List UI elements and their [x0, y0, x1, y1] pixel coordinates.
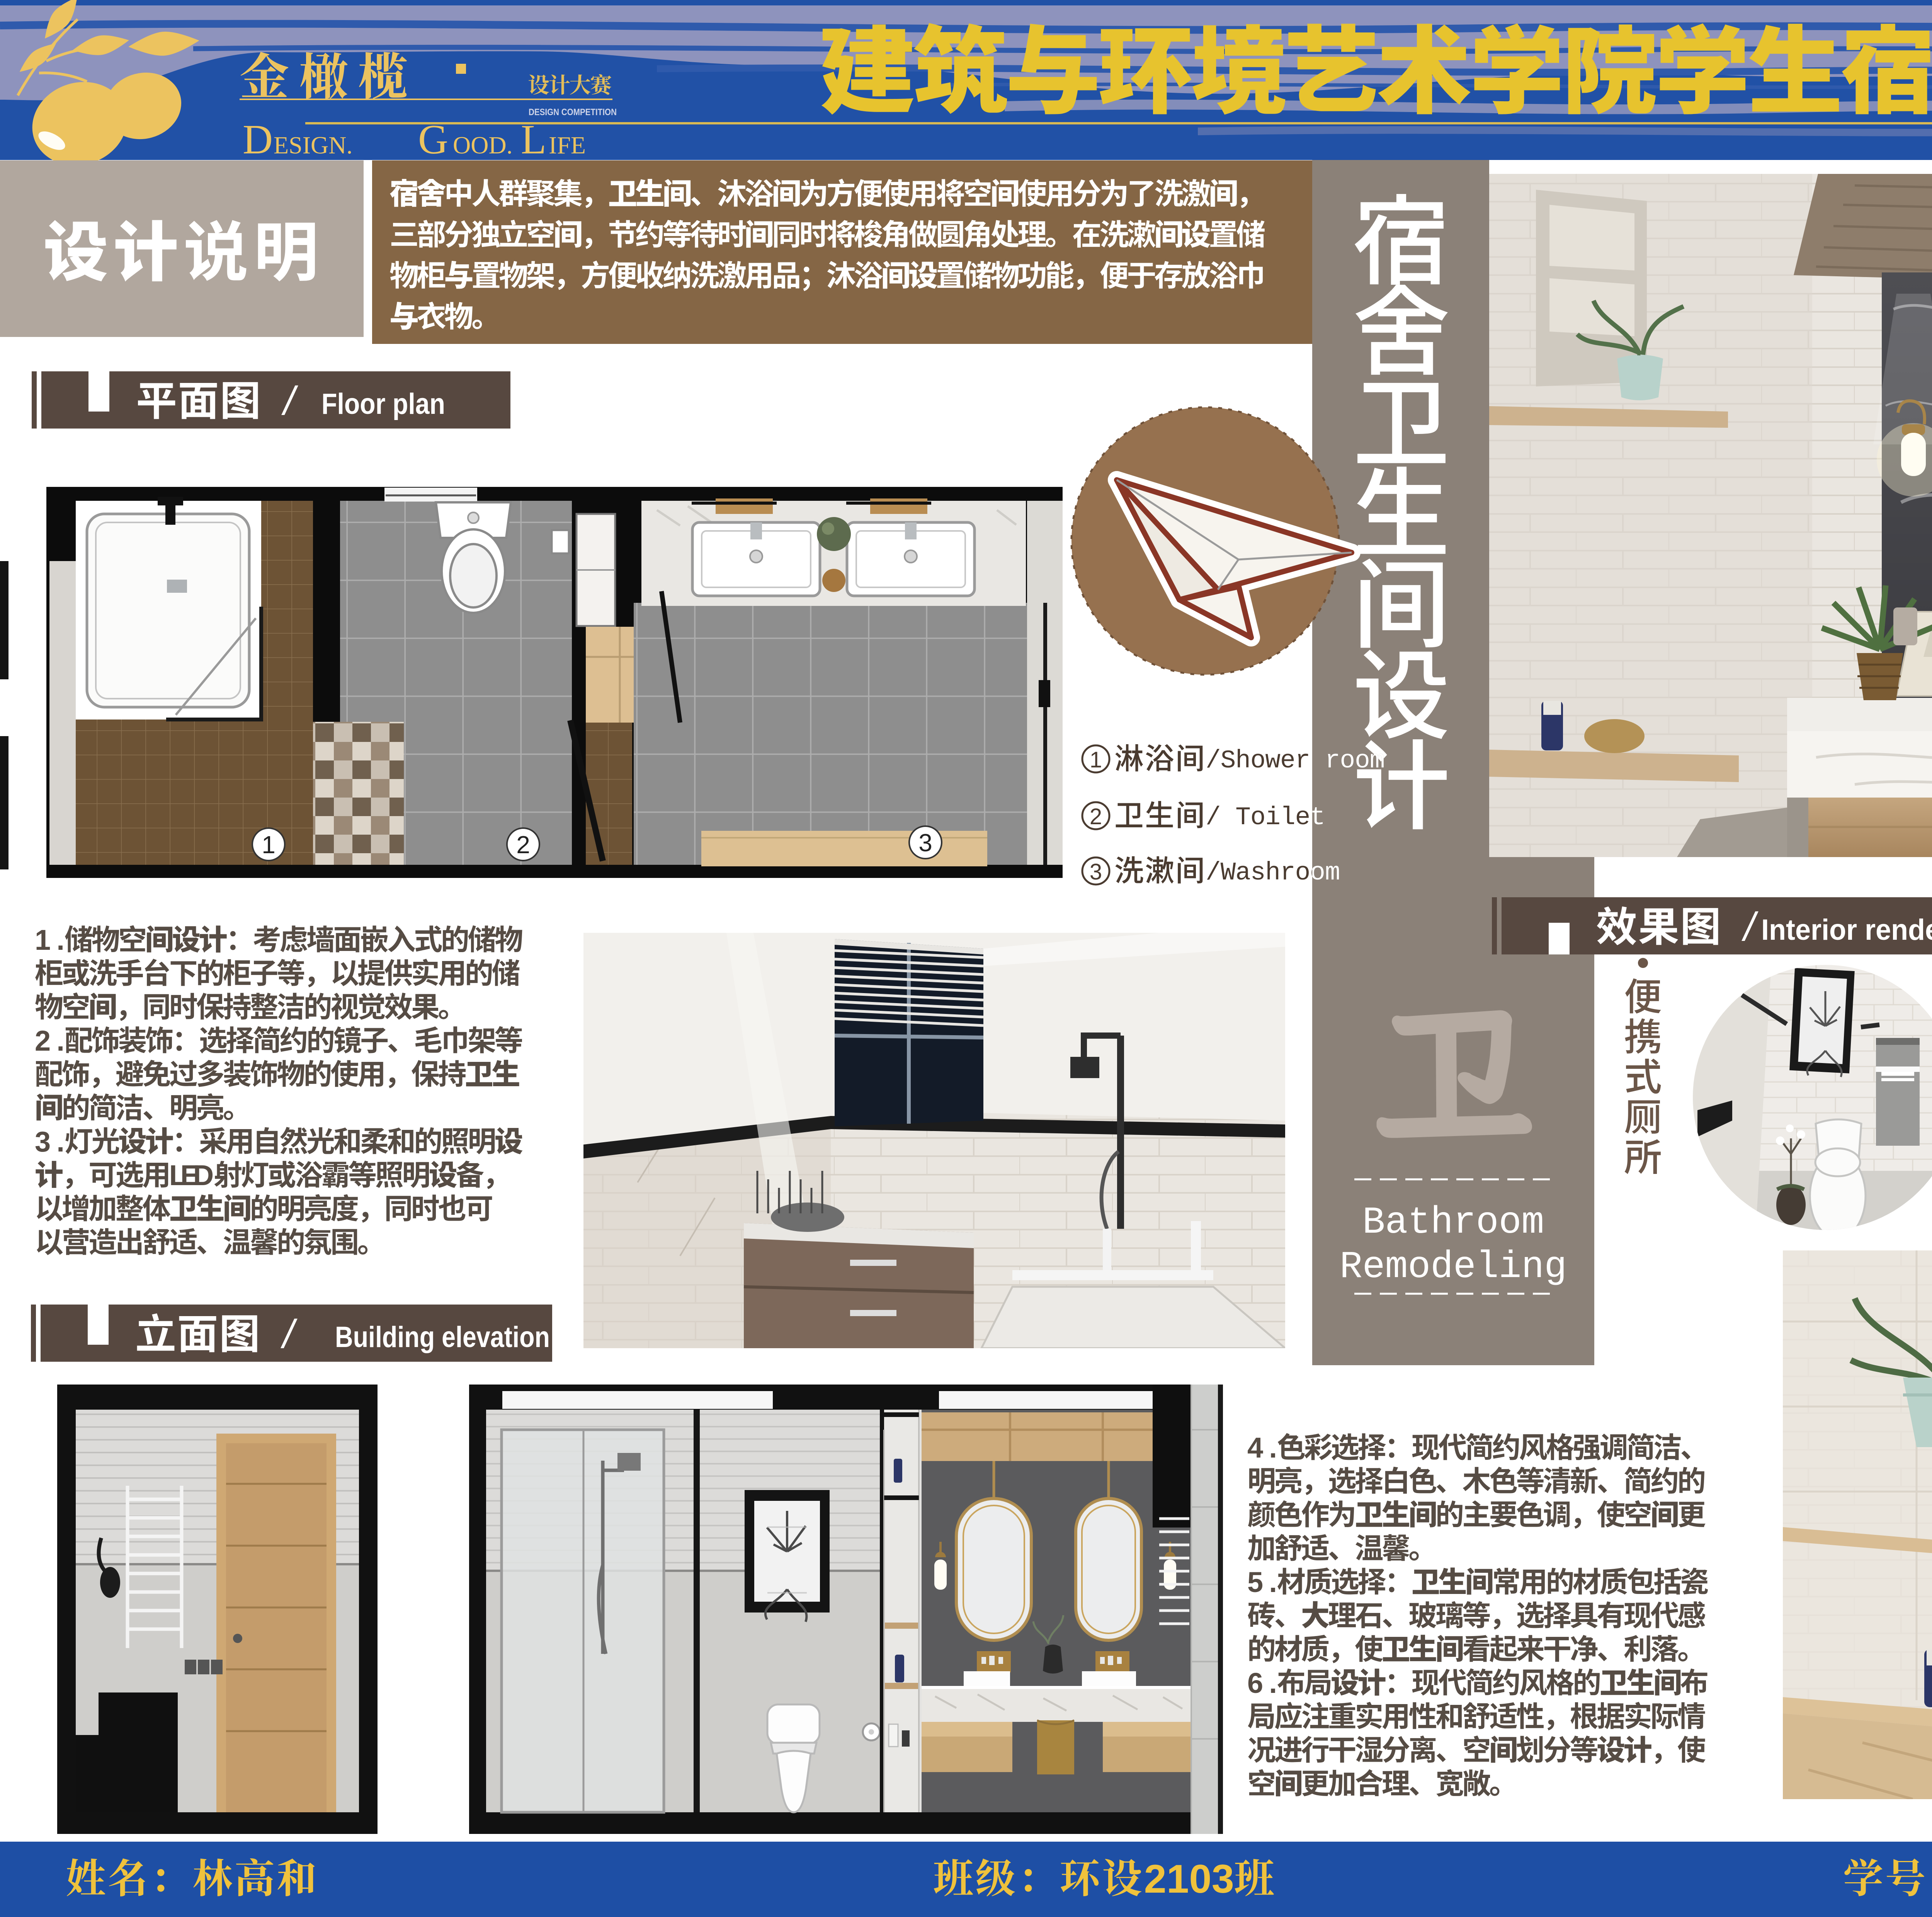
- svg-text:5.: 5.: [1247, 1566, 1277, 1598]
- svg-text:DESIGN COMPETITION: DESIGN COMPETITION: [529, 107, 617, 117]
- svg-text:3.: 3.: [35, 1126, 65, 1158]
- svg-text:1: 1: [1090, 747, 1102, 772]
- svg-text:LED: LED: [169, 1159, 214, 1191]
- svg-text:/ Toilet: / Toilet: [1206, 803, 1325, 832]
- svg-text:Interior renderings: Interior renderings: [1761, 913, 1932, 946]
- svg-text:Bathroom: Bathroom: [1362, 1201, 1544, 1244]
- svg-text:2103: 2103: [1144, 1857, 1234, 1902]
- svg-text:3: 3: [918, 829, 932, 857]
- svg-text:2.: 2.: [35, 1025, 65, 1057]
- svg-text:6.: 6.: [1247, 1667, 1277, 1699]
- svg-text:2: 2: [1090, 804, 1102, 829]
- svg-text:D: D: [243, 117, 273, 163]
- svg-text:IFE: IFE: [549, 131, 586, 159]
- svg-text:Floor plan: Floor plan: [321, 388, 445, 420]
- svg-text:1.: 1.: [35, 924, 65, 956]
- svg-text:OOD.: OOD.: [453, 131, 513, 159]
- svg-text:2: 2: [516, 831, 530, 859]
- svg-text:4.: 4.: [1247, 1432, 1277, 1464]
- svg-text:Building elevation: Building elevation: [335, 1321, 550, 1354]
- svg-text:1: 1: [262, 831, 276, 859]
- svg-text:3: 3: [1090, 859, 1102, 885]
- svg-text:ESIGN.: ESIGN.: [274, 131, 352, 159]
- svg-text:Remodeling: Remodeling: [1340, 1246, 1567, 1289]
